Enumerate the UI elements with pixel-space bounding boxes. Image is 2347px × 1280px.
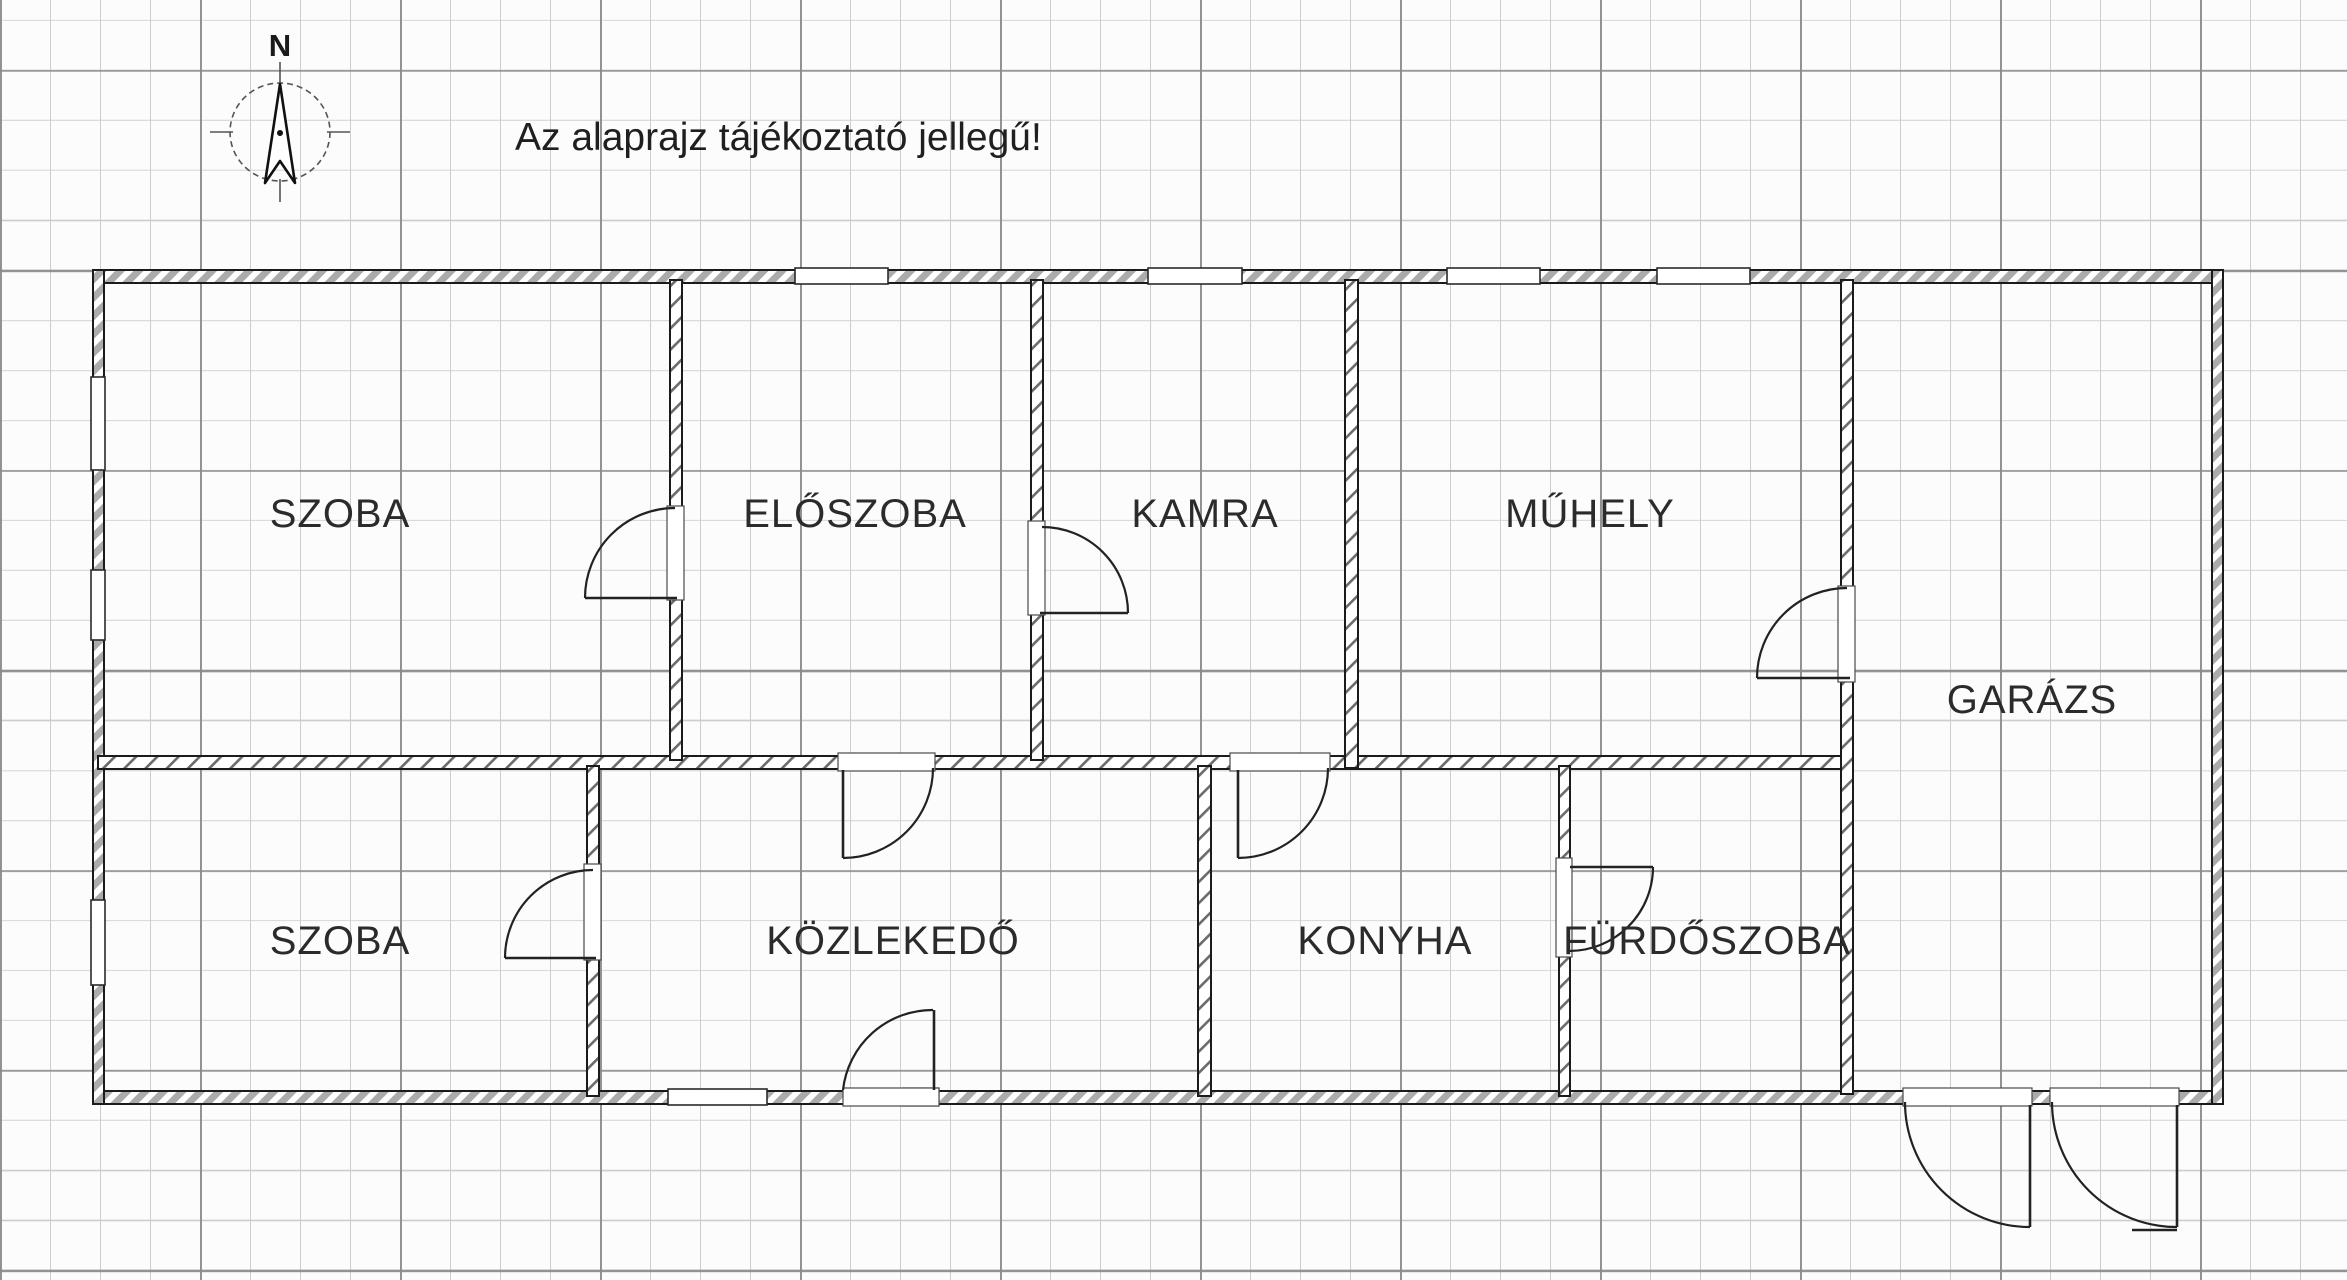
door-gap-entrance-opening [843, 1088, 939, 1106]
room-label-furdoszoba: FÜRDŐSZOBA [1563, 918, 1851, 963]
door-gap-eloszoba-kozlekedo [838, 753, 935, 771]
compass-rose: N [210, 28, 350, 202]
interior-wall-muhely-garazs [1841, 280, 1853, 1094]
room-label-garazs: GARÁZS [1947, 677, 2117, 722]
window-left-szoba2 [91, 900, 105, 985]
window-top-muhely-left [1447, 268, 1540, 284]
exterior-wall-right [2212, 270, 2223, 1104]
room-label-szoba-top: SZOBA [270, 492, 411, 536]
door-gap-garage-left [1903, 1088, 2032, 1106]
room-label-eloszoba: ELŐSZOBA [743, 491, 967, 536]
window-bottom-kozlekedo [668, 1089, 767, 1105]
interior-wall-eloszoba-kamra [1031, 280, 1043, 760]
door-arc-garazs-muhely [1757, 588, 1847, 678]
door-arc-eloszoba-kozlekedo [843, 768, 933, 858]
door-gap-kozlekedo-szoba2 [584, 864, 601, 960]
door-arc-eloszoba-kamra [1042, 527, 1128, 613]
disclaimer-note: Az alaprajz tájékoztató jellegű! [515, 116, 1042, 159]
door-gap-szoba-eloszoba [667, 506, 684, 600]
door-gap-eloszoba-kamra [1028, 521, 1045, 615]
door-openings [584, 506, 2179, 1106]
interior-wall-kamra-muhely [1345, 280, 1358, 768]
exterior-walls [93, 270, 2223, 1104]
door-gap-garage-right [2050, 1088, 2179, 1106]
interior-wall-kozlekedo-konyha [1198, 766, 1211, 1096]
window-top-muhely-right [1657, 268, 1750, 284]
room-label-konyha: KONYHA [1298, 919, 1473, 963]
room-label-szoba-bottom: SZOBA [270, 919, 411, 963]
window-top-eloszoba [795, 268, 888, 284]
room-label-kozlekedo: KÖZLEKEDŐ [766, 918, 1020, 963]
window-left-szoba-upper [91, 377, 105, 470]
interior-wall-horizontal-divider [98, 756, 1848, 769]
door-arc-kozlekedo-szoba2 [505, 870, 593, 958]
window-top-kamra [1148, 268, 1242, 284]
interior-walls [98, 280, 1853, 1096]
door-arc-garage-right [2052, 1102, 2177, 1227]
room-label-kamra: KAMRA [1131, 492, 1278, 536]
floor-plan-canvas: N Az alaprajz tájékoztató jellegű! [0, 0, 2347, 1280]
door-arc-kamra-konyha [1238, 768, 1328, 858]
compass-center-dot [277, 130, 283, 136]
compass-north-label: N [269, 28, 291, 63]
door-arc-entrance [843, 1010, 933, 1090]
door-arc-garage-left [1905, 1102, 2030, 1227]
windows [91, 268, 1750, 1105]
door-swings [505, 508, 2177, 1230]
window-left-szoba-lower [91, 570, 105, 640]
door-arc-szoba-eloszoba [585, 508, 675, 598]
door-gap-kamra-konyha [1230, 753, 1330, 771]
door-gap-garazs-muhely [1838, 586, 1855, 682]
room-label-muhely: MŰHELY [1505, 491, 1675, 536]
floor-plan-drawing: N Az alaprajz tájékoztató jellegű! [0, 0, 2347, 1280]
